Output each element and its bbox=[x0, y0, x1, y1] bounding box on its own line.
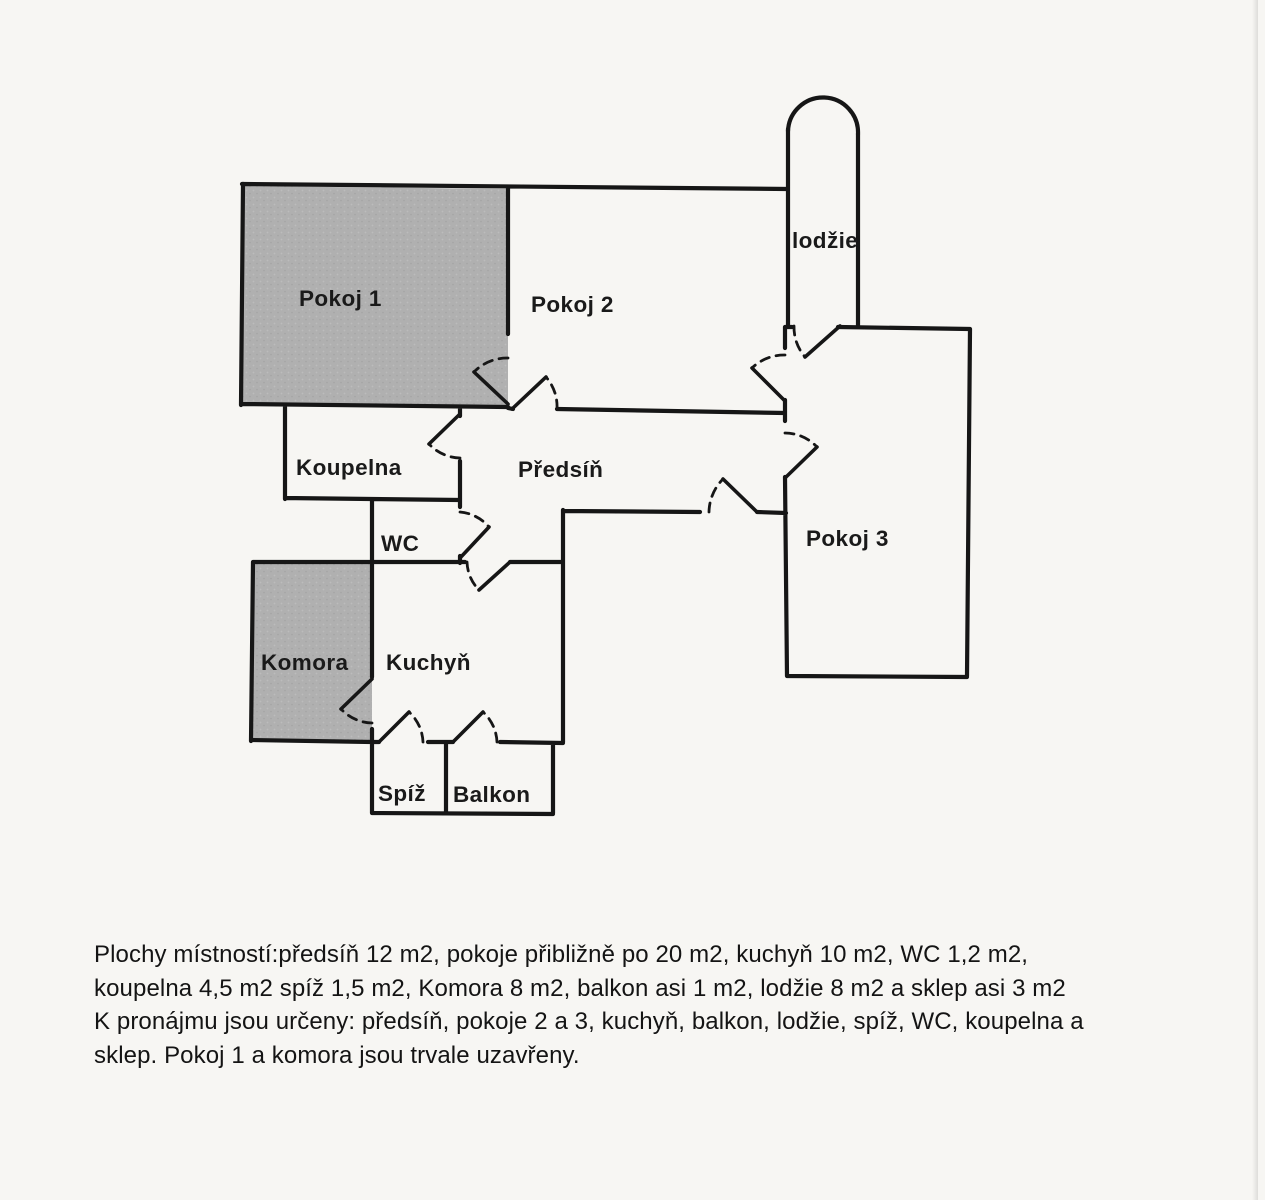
note-line-areas-1: Plochy místností:předsíň 12 m2, pokoje p… bbox=[94, 938, 1154, 972]
scan-page-edge-shadow bbox=[1252, 0, 1258, 1200]
note-line-rental-1: K pronájmu jsou určeny: předsíň, pokoje … bbox=[94, 1005, 1154, 1039]
room-label-koupelna: Koupelna bbox=[296, 455, 402, 480]
door-swing-arc bbox=[794, 326, 805, 357]
door-leaf bbox=[805, 326, 840, 357]
door-swing-arc bbox=[752, 355, 785, 368]
room-label-pokoj-3: Pokoj 3 bbox=[806, 526, 889, 551]
door-leaf bbox=[512, 377, 546, 409]
door-swing-arc bbox=[709, 479, 723, 512]
note-line-areas-2: koupelna 4,5 m2 spíž 1,5 m2, Komora 8 m2… bbox=[94, 972, 1154, 1006]
door-leaf bbox=[379, 712, 409, 742]
door-swing-arc bbox=[483, 712, 497, 742]
door-swing-arc bbox=[429, 444, 460, 458]
door-leaf bbox=[752, 368, 785, 401]
door-leaf bbox=[429, 414, 460, 444]
door-swing-arc bbox=[409, 712, 423, 742]
door-swing-arc bbox=[785, 433, 817, 447]
room-label-wc: WC bbox=[381, 531, 419, 556]
scanned-floor-plan-page: Pokoj 1 Pokoj 2 lodžie Pokoj 3 Koupelna … bbox=[0, 0, 1265, 1200]
room-label-predsin: Předsíň bbox=[518, 457, 603, 482]
room-label-pokoj-2: Pokoj 2 bbox=[531, 292, 614, 317]
room-label-spiz: Spíž bbox=[378, 781, 426, 806]
door-swing-arc bbox=[467, 562, 479, 590]
door-leaf bbox=[460, 527, 489, 558]
door-swing-arc bbox=[460, 512, 489, 527]
note-line-rental-2: sklep. Pokoj 1 a komora jsou trvale uzav… bbox=[94, 1039, 1154, 1073]
room-label-pokoj-1: Pokoj 1 bbox=[299, 286, 382, 311]
room-label-komora: Komora bbox=[261, 650, 348, 675]
room-label-kuchyn: Kuchyň bbox=[386, 650, 471, 675]
area-description-paragraph: Plochy místností:předsíň 12 m2, pokoje p… bbox=[94, 938, 1154, 1072]
room-label-lodzie: lodžie bbox=[792, 228, 858, 253]
door-leaf bbox=[479, 562, 510, 590]
lodzie-arch-wall bbox=[788, 97, 858, 134]
room-label-balkon: Balkon bbox=[453, 782, 530, 807]
door-leaf bbox=[453, 712, 483, 742]
door-leaf bbox=[723, 479, 757, 512]
door-swing-arc bbox=[546, 377, 557, 409]
door-leaf bbox=[785, 447, 817, 478]
